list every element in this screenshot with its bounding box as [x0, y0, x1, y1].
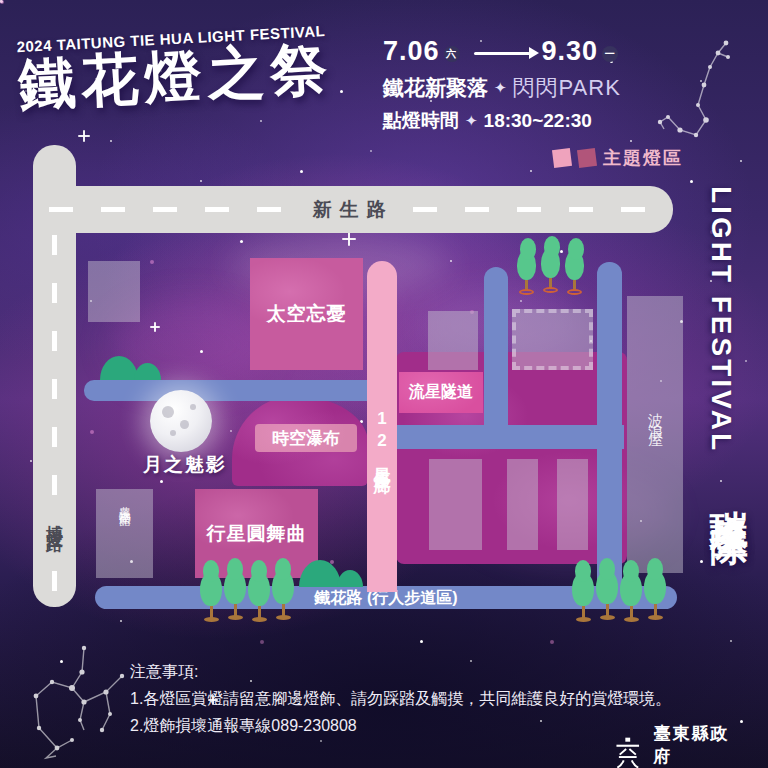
building-block: [557, 459, 588, 550]
taitung-government-logo-icon: [610, 734, 646, 768]
building-block: [507, 459, 538, 550]
lighting-time-value: 18:30~22:30: [484, 110, 592, 132]
date-end: 9.30: [542, 36, 599, 67]
wave-house: 波浪屋: [627, 296, 683, 573]
side-title-zh: 璀璨星際: [703, 480, 754, 504]
legend: 主題燈區: [553, 146, 683, 170]
poster-title-block: 2024 TAITUNG TIE HUA LIGHT FESTIVAL 鐵花燈之…: [16, 22, 335, 115]
date-start-day-badge: 六: [444, 46, 460, 62]
date-end-day-badge: 一: [602, 46, 618, 62]
side-title-en: LIGHT FESTIVAL: [705, 186, 737, 453]
notice-item: 2.燈飾損壞通報專線089-230808: [130, 714, 671, 739]
road-xinsheng-label: 新生路: [303, 197, 404, 223]
zone-meteor-tunnel: 流星隧道: [399, 372, 483, 413]
shrub-mound: [100, 356, 138, 380]
venue-name: 鐵花新聚落: [383, 74, 488, 102]
poster-title: 鐵花燈之祭: [17, 39, 335, 115]
org-text: 臺東縣政府 Taitung County Government: [654, 722, 748, 768]
building-block: [88, 261, 140, 322]
tree-icon: [572, 572, 594, 622]
tree-icon: [644, 570, 666, 620]
government-logo-block: 臺東縣政府 Taitung County Government: [610, 722, 768, 768]
lighting-time-label: 點燈時間: [383, 108, 459, 134]
sparkle-icon: [78, 130, 90, 142]
tree-icon: [596, 570, 618, 620]
notice-section: 注意事項: 1.各燈區賞燈請留意腳邊燈飾、請勿踩踏及觸摸，共同維護良好的賞燈環境…: [130, 660, 671, 740]
sparkle-icon: ✦: [494, 79, 507, 97]
sparkle-icon: [150, 322, 160, 332]
farm-products-hall-label: 農漁物產館: [116, 497, 133, 507]
road-boai-label: 博愛路: [43, 505, 66, 532]
moon-illustration: [150, 390, 212, 452]
tree-icon: [541, 248, 560, 293]
zone-space-oblivion: 太空忘憂: [250, 258, 363, 370]
date-start: 7.06: [383, 36, 440, 67]
building-block: [429, 459, 482, 550]
shrub-mound: [134, 363, 161, 380]
road-xinsheng: 新生路: [33, 186, 673, 233]
zone-time-waterfall: 時空瀑布: [255, 424, 357, 452]
festival-map-poster: 農漁物產館 波浪屋 博愛路 新生路 鐵花路 (行人步道區) 12星座長廊 太空忘…: [0, 0, 768, 768]
arrow-right-icon: [474, 52, 530, 55]
star-field: [0, 0, 4, 4]
tree-icon: [224, 570, 246, 620]
notice-item: 1.各燈區賞燈請留意腳邊燈飾、請勿踩踏及觸摸，共同維護良好的賞燈環境。: [130, 687, 671, 712]
tree-icon: [200, 572, 222, 622]
building-block: [428, 311, 478, 370]
event-info-block: 7.06 六 9.30 一 鐵花新聚落 ✦ 閃閃PARK 點燈時間 ✦ 18:3…: [383, 36, 622, 134]
event-venue: 鐵花新聚落 ✦ 閃閃PARK: [383, 73, 622, 103]
zodiac-corridor-label: 12星座長廊: [371, 409, 394, 465]
sparkle-icon: [342, 232, 356, 246]
road-blue-vertical-2: [597, 262, 622, 608]
market-stalls-block: [512, 309, 593, 370]
venue-park: 閃閃PARK: [513, 73, 621, 103]
lighting-time: 點燈時間 ✦ 18:30~22:30: [383, 108, 622, 134]
tree-icon: [620, 572, 642, 622]
legend-swatch-pink: [552, 148, 572, 168]
wave-house-label: 波浪屋: [646, 401, 665, 431]
tree-icon: [248, 572, 270, 622]
farm-products-hall: 農漁物產館: [96, 489, 153, 578]
sparkle-icon: ✦: [465, 112, 478, 130]
tree-icon: [272, 570, 294, 620]
zone-moon-shadow-label: 月之魅影: [143, 452, 227, 478]
org-name-zh: 臺東縣政府: [654, 722, 748, 768]
tree-icon: [565, 250, 584, 295]
road-blue-right: [396, 425, 624, 449]
scorpius-constellation: [648, 25, 748, 155]
legend-label: 主題燈區: [603, 146, 683, 170]
notice-title: 注意事項:: [130, 660, 671, 685]
tree-icon: [517, 250, 536, 295]
shrub-mound: [337, 570, 363, 587]
legend-swatch-rose: [577, 148, 597, 168]
road-blue-vertical-1: [484, 267, 508, 449]
road-blue-left: [84, 380, 368, 401]
zodiac-corridor: 12星座長廊: [367, 261, 397, 592]
event-dates: 7.06 六 9.30 一: [383, 36, 622, 67]
